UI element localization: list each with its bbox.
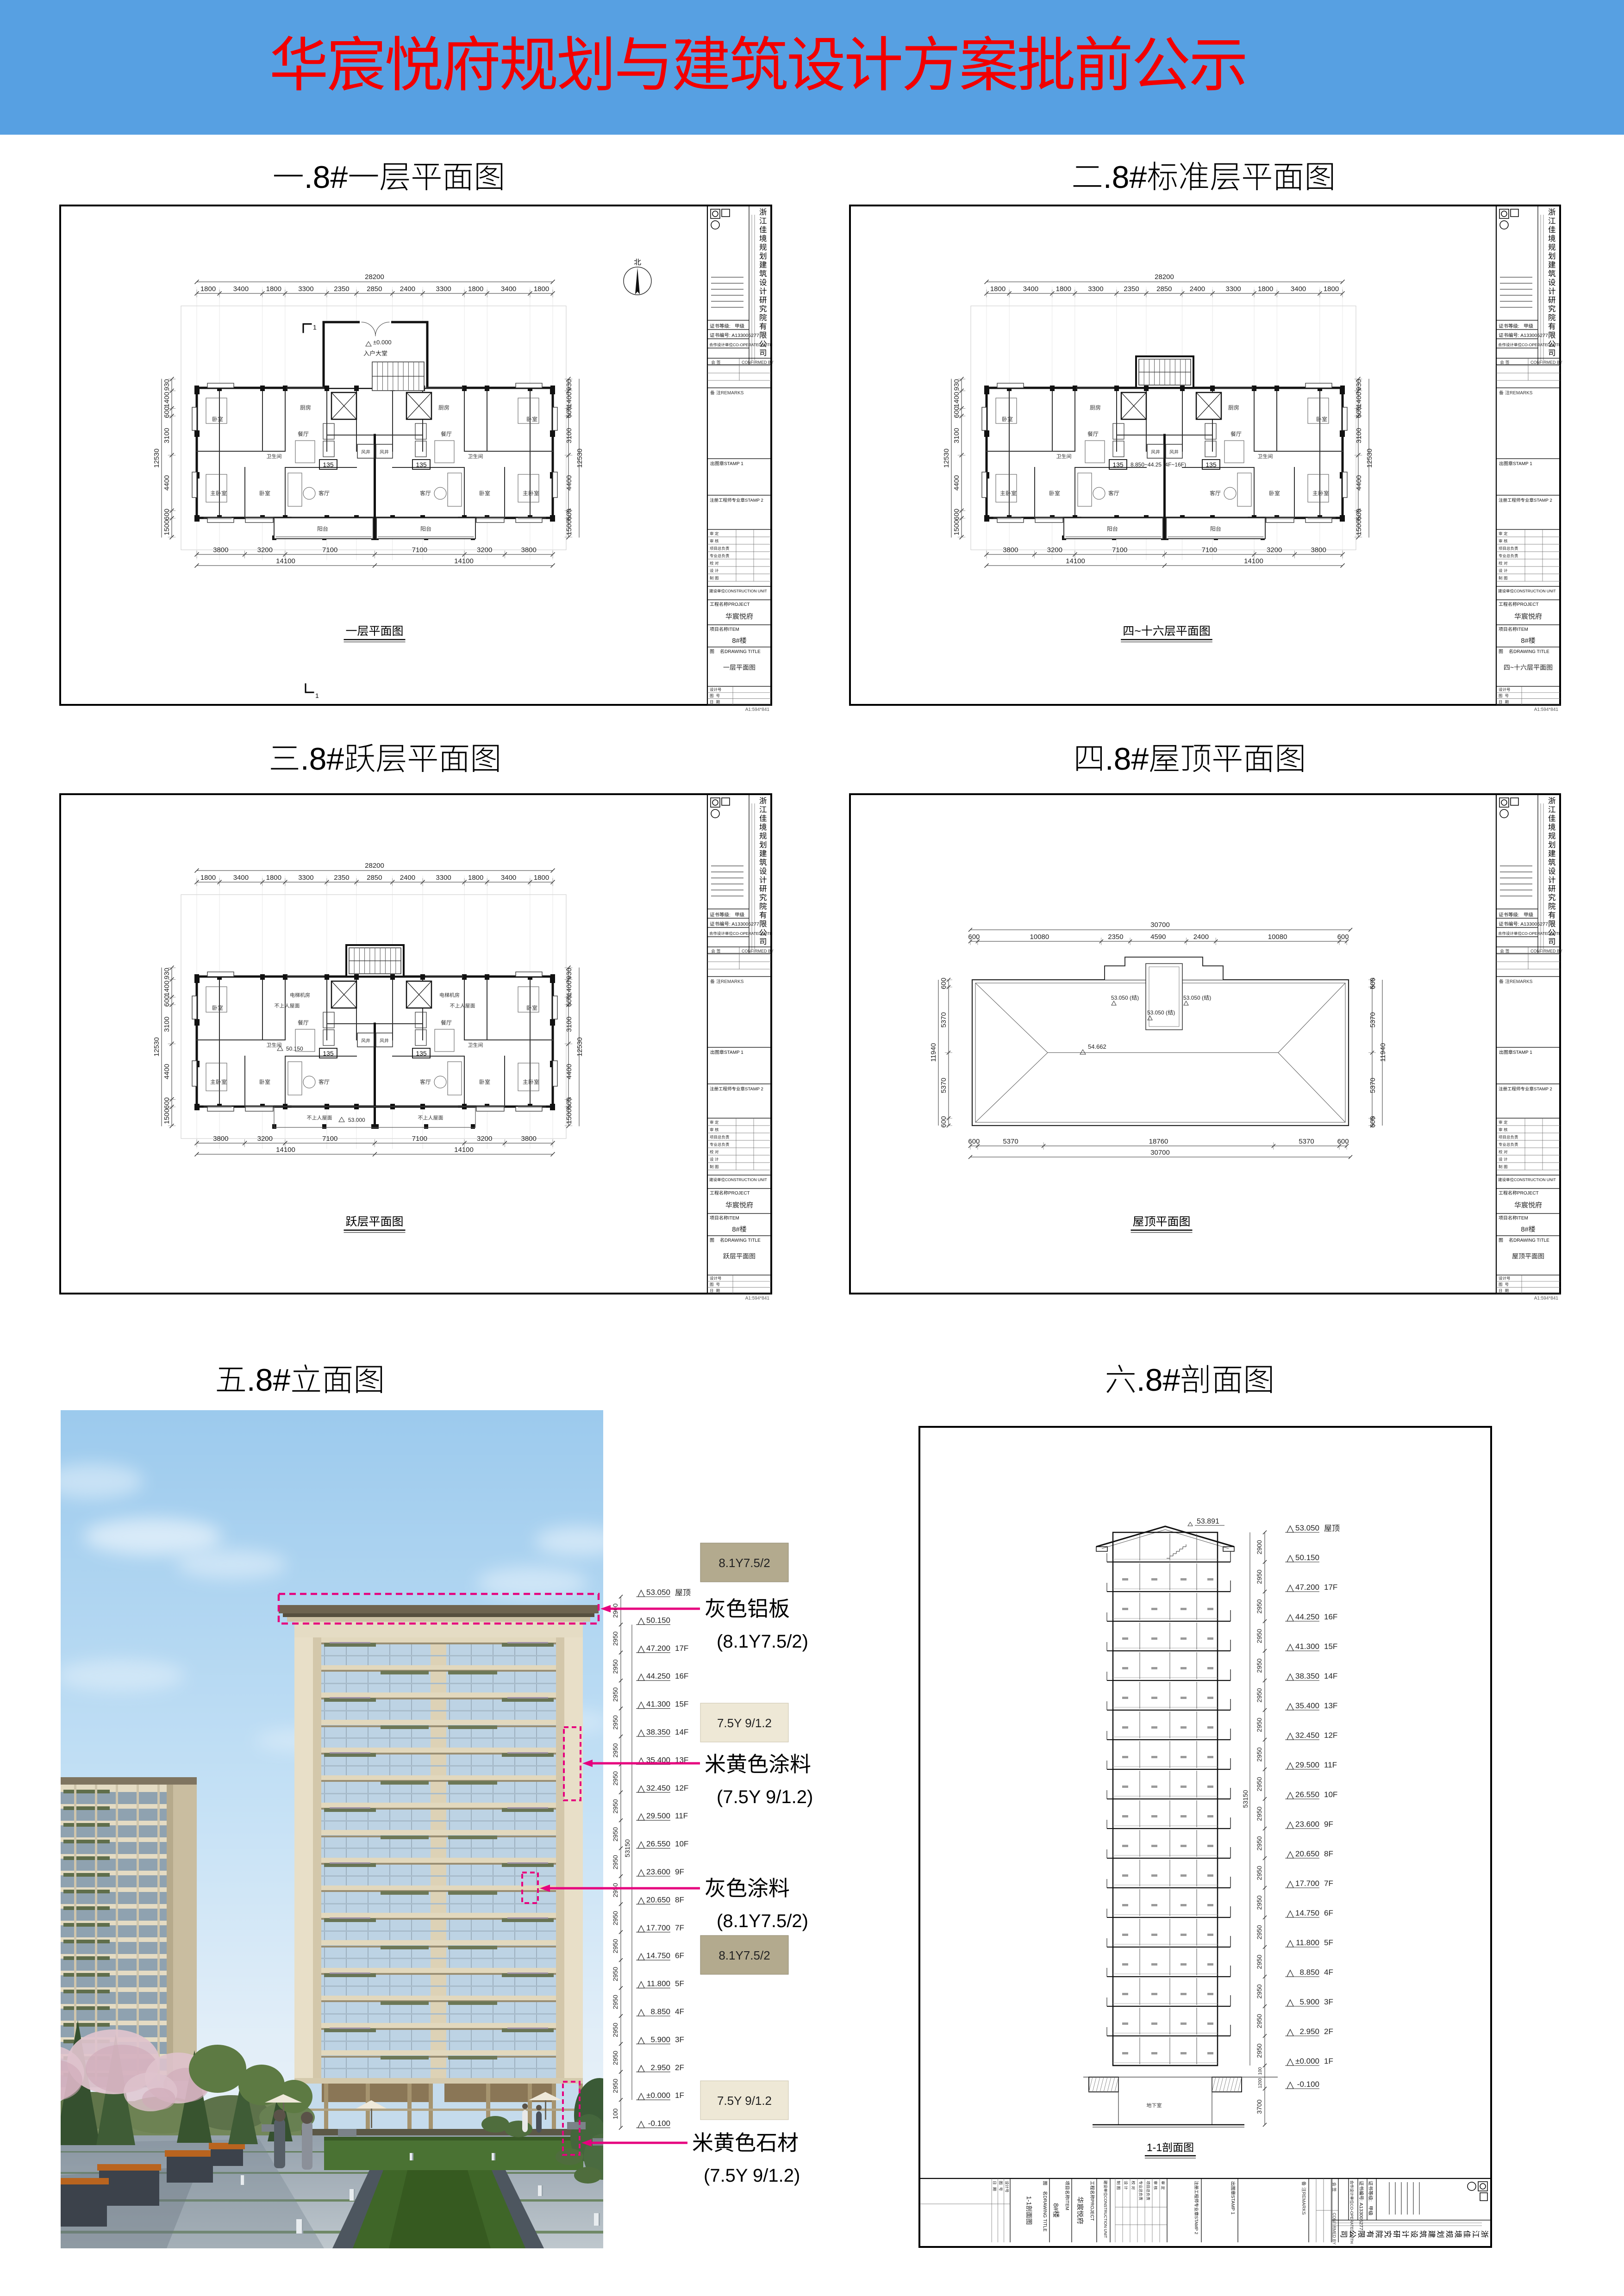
svg-text::: :	[729, 912, 731, 918]
svg-text:2400: 2400	[400, 285, 415, 293]
svg-text:53.050 (: 53.050 (	[1183, 995, 1204, 1001]
svg-text:28200: 28200	[365, 273, 384, 281]
svg-text:4F: 4F	[675, 2007, 684, 2016]
svg-text:±0.000: ±0.000	[373, 339, 392, 346]
svg-text:6F: 6F	[675, 1951, 684, 1960]
svg-text:2950: 2950	[1255, 1954, 1263, 1969]
svg-text:600: 600	[953, 509, 961, 520]
svg-text:2950: 2950	[1255, 1984, 1263, 1998]
svg-text:38.350: 38.350	[1295, 1672, 1319, 1680]
svg-text:8#: 8#	[732, 637, 740, 645]
svg-text:44.250: 44.250	[1295, 1612, 1319, 1621]
svg-text:3300: 3300	[1088, 285, 1103, 293]
svg-text:11.800: 11.800	[647, 1979, 670, 1988]
svg-text:3700: 3700	[1255, 2099, 1263, 2114]
svg-text:.8#: .8#	[247, 1363, 291, 1398]
svg-text:STAMP 1: STAMP 1	[1513, 1050, 1532, 1055]
svg-text:2950: 2950	[1255, 2014, 1263, 2028]
svg-text:1800: 1800	[468, 285, 483, 293]
svg-text:2.950: 2.950	[650, 2063, 670, 2072]
svg-text:3100: 3100	[163, 1017, 171, 1032]
svg-text:2850: 2850	[367, 285, 382, 293]
svg-text:3800: 3800	[1311, 546, 1326, 554]
svg-text:53.891: 53.891	[1197, 1518, 1219, 1525]
svg-text:600: 600	[565, 406, 573, 418]
svg-text:53.050 (: 53.050 (	[1147, 1009, 1168, 1016]
svg-text:47.200: 47.200	[1295, 1583, 1319, 1592]
svg-text:2950: 2950	[612, 1883, 619, 1897]
svg-text:53.050: 53.050	[646, 1588, 670, 1597]
svg-text::: :	[1518, 324, 1519, 329]
svg-text:.8#: .8#	[1103, 160, 1147, 195]
svg-text:~: ~	[1134, 625, 1141, 638]
svg-text:STAMP 1: STAMP 1	[1230, 2195, 1235, 2215]
svg-text:1500: 1500	[565, 520, 573, 535]
svg-text:2950: 2950	[612, 1715, 619, 1730]
svg-text:20.650: 20.650	[646, 1895, 670, 1904]
svg-text:CONFIRMED BY: CONFIRMED BY	[1332, 2213, 1337, 2245]
svg-text:: A133005277: : A133005277	[1518, 333, 1548, 338]
svg-text:2400: 2400	[400, 874, 415, 882]
svg-text:5370: 5370	[1003, 1138, 1018, 1145]
svg-text:8#: 8#	[1521, 1226, 1529, 1233]
svg-text:12530: 12530	[943, 448, 950, 468]
svg-text:CO-OPERATED WITH: CO-OPERATED WITH	[733, 342, 773, 347]
svg-text:2950: 2950	[612, 1771, 619, 1786]
svg-text:3300: 3300	[1225, 285, 1241, 293]
svg-text:14.750: 14.750	[1295, 1909, 1319, 1917]
svg-text:16F: 16F	[675, 1672, 688, 1680]
svg-text:600: 600	[940, 1116, 948, 1128]
svg-text:2350: 2350	[1124, 285, 1139, 293]
svg-text:8#: 8#	[732, 1226, 740, 1233]
svg-text:CONSTRUCTION UNIT: CONSTRUCTION UNIT	[725, 589, 767, 593]
svg-text:3400: 3400	[233, 874, 249, 882]
svg-text:CO-OPERATED WITH: CO-OPERATED WITH	[1522, 342, 1562, 347]
svg-text:STAMP 1: STAMP 1	[1513, 461, 1532, 467]
svg-text:1500: 1500	[163, 520, 171, 535]
svg-text:9F: 9F	[1324, 1820, 1333, 1829]
svg-text:7100: 7100	[412, 546, 427, 554]
svg-text:1400: 1400	[163, 392, 171, 407]
svg-text:50.150: 50.150	[286, 1045, 303, 1052]
svg-text:600: 600	[1355, 509, 1363, 520]
svg-text:2400: 2400	[1190, 285, 1205, 293]
svg-text:2950: 2950	[612, 1827, 619, 1842]
svg-text:7.5Y 9/1.2: 7.5Y 9/1.2	[717, 1716, 772, 1730]
svg-text:53.050 (: 53.050 (	[1111, 995, 1131, 1001]
svg-text:53.050: 53.050	[1295, 1524, 1319, 1532]
svg-text:2950: 2950	[1255, 1747, 1263, 1761]
svg-text:3800: 3800	[1003, 546, 1018, 554]
svg-text:±0.000: ±0.000	[646, 2091, 670, 2100]
svg-text:14100: 14100	[1066, 557, 1085, 565]
svg-text:26.550: 26.550	[1295, 1790, 1319, 1799]
svg-text:8.1Y7.5/2: 8.1Y7.5/2	[718, 1556, 770, 1570]
svg-text:135: 135	[1206, 461, 1217, 468]
svg-text:2F: 2F	[675, 2063, 684, 2072]
svg-text:1200: 1200	[1258, 2078, 1263, 2088]
svg-text:930: 930	[565, 968, 573, 979]
svg-text:2950: 2950	[1255, 1866, 1263, 1880]
svg-text:DRAWING TITLE: DRAWING TITLE	[725, 649, 761, 654]
svg-text:(8.1Y7.5/2): (8.1Y7.5/2)	[717, 1911, 808, 1931]
svg-text:5370: 5370	[940, 1012, 948, 1027]
svg-text:47.200: 47.200	[646, 1644, 670, 1653]
svg-text:600: 600	[1369, 977, 1377, 989]
svg-text:STAMP 2: STAMP 2	[1193, 2216, 1199, 2234]
svg-text:±0.000: ±0.000	[1295, 2057, 1319, 2066]
svg-text:5F: 5F	[675, 1979, 684, 1988]
svg-text:2950: 2950	[612, 1631, 619, 1646]
svg-text:135: 135	[323, 1050, 334, 1057]
svg-text:3100: 3100	[1355, 428, 1363, 443]
svg-text:7F: 7F	[675, 1923, 684, 1932]
svg-text:.8#: .8#	[1105, 741, 1149, 777]
svg-text:2850: 2850	[1156, 285, 1172, 293]
svg-text:): )	[1209, 995, 1211, 1001]
svg-text:STAMP 2: STAMP 2	[1534, 498, 1552, 503]
svg-text:10F: 10F	[675, 1840, 688, 1848]
svg-text:10F: 10F	[1324, 1790, 1337, 1799]
svg-text:38.350: 38.350	[646, 1728, 670, 1736]
svg-text:29.500: 29.500	[646, 1811, 670, 1820]
svg-text:3400: 3400	[501, 874, 516, 882]
svg-text:8F: 8F	[675, 1895, 684, 1904]
svg-text:2900: 2900	[1255, 1540, 1263, 1554]
svg-text:5.900: 5.900	[1299, 1997, 1319, 2006]
svg-text:7100: 7100	[322, 1135, 337, 1143]
svg-text:2950: 2950	[612, 2078, 619, 2093]
svg-text:14.750: 14.750	[646, 1951, 670, 1960]
svg-text:8#: 8#	[1052, 2203, 1060, 2211]
svg-text:1: 1	[313, 324, 317, 331]
svg-text:5.900: 5.900	[650, 2035, 670, 2044]
svg-text:3300: 3300	[436, 285, 451, 293]
svg-text:2.950: 2.950	[1299, 2027, 1319, 2036]
svg-text:11.800: 11.800	[1296, 1938, 1319, 1947]
svg-text:STAMP 2: STAMP 2	[745, 1087, 763, 1092]
svg-text:12530: 12530	[153, 448, 161, 468]
svg-text:7.5Y 9/1.2: 7.5Y 9/1.2	[717, 2094, 772, 2108]
svg-text:12F: 12F	[1324, 1731, 1337, 1740]
svg-text:11F: 11F	[1324, 1761, 1337, 1769]
svg-text:CONSTRUCTION UNIT: CONSTRUCTION UNIT	[1514, 589, 1556, 593]
svg-text:15F: 15F	[1324, 1642, 1337, 1651]
svg-text:REMARKS: REMARKS	[1301, 2192, 1306, 2215]
svg-text:1800: 1800	[990, 285, 1006, 293]
svg-text:50.150: 50.150	[646, 1616, 670, 1624]
svg-text:~: ~	[1510, 664, 1514, 671]
svg-text:2950: 2950	[1255, 1806, 1263, 1821]
svg-text:(7.5Y 9/1.2): (7.5Y 9/1.2)	[717, 1787, 813, 1807]
svg-text:17F: 17F	[1324, 1583, 1337, 1592]
svg-text:REMARKS: REMARKS	[1510, 979, 1533, 984]
svg-text:1-1: 1-1	[1025, 2196, 1033, 2205]
svg-text:REMARKS: REMARKS	[721, 979, 744, 984]
svg-text:1400: 1400	[1355, 392, 1363, 407]
svg-text:26.550: 26.550	[646, 1840, 670, 1848]
svg-text:5370: 5370	[1369, 1078, 1377, 1093]
svg-text:41.300: 41.300	[1295, 1642, 1319, 1651]
svg-text:13F: 13F	[1324, 1701, 1337, 1710]
svg-text:29.500: 29.500	[1295, 1761, 1319, 1769]
svg-text:1800: 1800	[1324, 285, 1339, 293]
svg-text:: A133005277: : A133005277	[729, 921, 759, 927]
svg-text:1800: 1800	[266, 285, 281, 293]
svg-text:2950: 2950	[612, 2022, 619, 2037]
svg-text:3800: 3800	[521, 546, 537, 554]
svg-text:930: 930	[163, 379, 171, 391]
svg-text:1: 1	[315, 692, 319, 699]
svg-text:CONSTRUCTION UNIT: CONSTRUCTION UNIT	[1514, 1177, 1556, 1182]
svg-text:DRAWING TITLE: DRAWING TITLE	[1513, 649, 1549, 654]
svg-text:53.000: 53.000	[348, 1117, 365, 1123]
svg-text:DRAWING TITLE: DRAWING TITLE	[1042, 2196, 1047, 2232]
svg-text:3F: 3F	[1324, 1997, 1333, 2006]
svg-text:7100: 7100	[322, 546, 337, 554]
svg-text:20.650: 20.650	[1295, 1849, 1319, 1858]
svg-text:28200: 28200	[365, 862, 384, 870]
svg-text:600: 600	[163, 406, 171, 418]
svg-text:14100: 14100	[454, 1146, 474, 1154]
svg-text:600: 600	[968, 933, 980, 941]
svg-text:2850: 2850	[367, 874, 382, 882]
svg-text:28200: 28200	[1155, 273, 1174, 281]
svg-text:ITEM: ITEM	[728, 1216, 739, 1221]
svg-text:23.600: 23.600	[646, 1867, 670, 1876]
svg-text:1800: 1800	[534, 285, 549, 293]
svg-text:7100: 7100	[1202, 546, 1217, 554]
svg-text:600: 600	[1355, 406, 1363, 418]
svg-text:600: 600	[163, 995, 171, 1007]
svg-text:4400: 4400	[163, 475, 171, 491]
svg-text:53150: 53150	[1242, 1790, 1249, 1808]
svg-text::: :	[1368, 2200, 1373, 2202]
svg-text:3200: 3200	[257, 1135, 273, 1143]
svg-text:ITEM: ITEM	[1517, 1216, 1528, 1221]
svg-text:1400: 1400	[163, 981, 171, 996]
svg-text:3100: 3100	[565, 428, 573, 443]
svg-text:1500: 1500	[953, 520, 961, 535]
svg-text:ITEM: ITEM	[1064, 2199, 1069, 2210]
svg-text:1500: 1500	[1355, 520, 1363, 535]
svg-text:30700: 30700	[1150, 921, 1170, 929]
svg-text:1-1: 1-1	[1147, 2141, 1162, 2153]
svg-text:600: 600	[1337, 1138, 1349, 1145]
svg-text:15F: 15F	[675, 1700, 688, 1709]
svg-text:1400: 1400	[953, 392, 961, 407]
svg-text:5370: 5370	[940, 1078, 948, 1093]
svg-text:2950: 2950	[1255, 1569, 1263, 1584]
svg-text:17.700: 17.700	[1295, 1879, 1319, 1888]
svg-text:2950: 2950	[1255, 1658, 1263, 1673]
svg-text:600: 600	[565, 995, 573, 1007]
svg-text:CO-OPERATED WITH: CO-OPERATED WITH	[733, 931, 773, 936]
svg-text:3300: 3300	[298, 874, 313, 882]
svg-text:4400: 4400	[953, 475, 961, 491]
svg-text:A1:594*841: A1:594*841	[1534, 1296, 1559, 1301]
svg-text:A1:594*841: A1:594*841	[745, 1296, 770, 1301]
svg-text:3100: 3100	[953, 428, 961, 443]
svg-text:600: 600	[940, 977, 948, 989]
svg-text:5F: 5F	[1324, 1938, 1333, 1947]
svg-text:10080: 10080	[1268, 933, 1287, 941]
svg-text:600: 600	[953, 406, 961, 418]
svg-text:1800: 1800	[1056, 285, 1071, 293]
svg-text:2950: 2950	[1255, 1688, 1263, 1702]
svg-text:CO-OPERATED WITH: CO-OPERATED WITH	[1522, 931, 1562, 936]
svg-text:2950: 2950	[612, 2051, 619, 2065]
svg-text:23.600: 23.600	[1295, 1820, 1319, 1829]
svg-text:12530: 12530	[153, 1037, 161, 1057]
svg-text:PROJECT: PROJECT	[1517, 1191, 1539, 1196]
svg-text:CONFIRMED BY: CONFIRMED BY	[742, 949, 774, 953]
svg-text:32.450: 32.450	[646, 1784, 670, 1792]
svg-text:3200: 3200	[1267, 546, 1282, 554]
svg-text:CONSTRUCTION UNIT: CONSTRUCTION UNIT	[1103, 2196, 1108, 2238]
svg-text:2350: 2350	[334, 874, 349, 882]
svg-text:10080: 10080	[1030, 933, 1049, 941]
svg-text::: :	[1518, 912, 1519, 918]
svg-text:STAMP 2: STAMP 2	[745, 498, 763, 503]
svg-text:1800: 1800	[200, 285, 216, 293]
svg-text:35.400: 35.400	[1295, 1701, 1319, 1710]
svg-text:50.150: 50.150	[1295, 1553, 1319, 1562]
svg-text:7F: 7F	[1324, 1879, 1333, 1888]
svg-text:32.450: 32.450	[1295, 1731, 1319, 1740]
svg-text:100: 100	[1258, 2067, 1263, 2075]
svg-text:: A133005277: : A133005277	[1358, 2200, 1364, 2230]
svg-text:STAMP 1: STAMP 1	[724, 1050, 743, 1055]
svg-text:18760: 18760	[1149, 1138, 1168, 1145]
svg-text:-0.100: -0.100	[648, 2119, 670, 2128]
svg-text:2950: 2950	[1255, 1629, 1263, 1643]
svg-text:1F: 1F	[1324, 2057, 1333, 2066]
svg-text:3100: 3100	[163, 428, 171, 443]
svg-text:8F: 8F	[1324, 1849, 1333, 1858]
svg-text:PROJECT: PROJECT	[1517, 602, 1539, 607]
svg-text:3300: 3300	[436, 874, 451, 882]
svg-text:-0.100: -0.100	[1297, 2080, 1319, 2089]
svg-text:PROJECT: PROJECT	[728, 1191, 750, 1196]
svg-text:11F: 11F	[675, 1811, 688, 1820]
svg-text:1800: 1800	[200, 874, 216, 882]
svg-text:3200: 3200	[477, 1135, 492, 1143]
svg-text:1800: 1800	[534, 874, 549, 882]
svg-text:5370: 5370	[1369, 1012, 1377, 1027]
svg-text:930: 930	[1355, 379, 1363, 391]
svg-text:9F: 9F	[675, 1867, 684, 1876]
svg-text:2950: 2950	[612, 1799, 619, 1813]
svg-text:12530: 12530	[576, 448, 584, 468]
svg-text:2F: 2F	[1324, 2027, 1333, 2036]
svg-text:2950: 2950	[612, 1911, 619, 1925]
svg-text:2950: 2950	[1255, 2043, 1263, 2058]
svg-text:5370: 5370	[1299, 1138, 1314, 1145]
svg-text:8.850~44.25 (4F~16F): 8.850~44.25 (4F~16F)	[1131, 461, 1186, 468]
svg-text:1800: 1800	[468, 874, 483, 882]
svg-text:4400: 4400	[163, 1064, 171, 1079]
svg-text:DRAWING TITLE: DRAWING TITLE	[725, 1238, 761, 1243]
svg-text:REMARKS: REMARKS	[721, 391, 744, 396]
svg-text:8#: 8#	[1521, 637, 1529, 645]
svg-text:14100: 14100	[276, 557, 295, 565]
svg-text:A1:594*841: A1:594*841	[1534, 707, 1559, 712]
svg-text:8.850: 8.850	[1299, 1968, 1319, 1977]
svg-text:16F: 16F	[1324, 1612, 1337, 1621]
svg-text:11940: 11940	[930, 1043, 937, 1062]
svg-text:1800: 1800	[1258, 285, 1273, 293]
svg-text:1500: 1500	[565, 1109, 573, 1124]
svg-text:CO-OPERATED WITH: CO-OPERATED WITH	[1349, 2204, 1354, 2244]
svg-text:4590: 4590	[1150, 933, 1166, 941]
svg-text:ITEM: ITEM	[728, 627, 739, 632]
svg-text:DRAWING TITLE: DRAWING TITLE	[1513, 1238, 1549, 1243]
svg-text:CONFIRMED BY: CONFIRMED BY	[1530, 360, 1562, 365]
svg-text:STAMP 2: STAMP 2	[1534, 1087, 1552, 1092]
svg-text:): )	[1137, 995, 1139, 1001]
svg-text:3800: 3800	[213, 546, 228, 554]
svg-text:135: 135	[416, 461, 427, 468]
svg-text:CONSTRUCTION UNIT: CONSTRUCTION UNIT	[725, 1177, 767, 1182]
svg-text:14100: 14100	[1244, 557, 1263, 565]
svg-text:4400: 4400	[565, 1064, 573, 1079]
svg-text:): )	[1173, 1009, 1175, 1016]
svg-text:8.1Y7.5/2: 8.1Y7.5/2	[718, 1948, 770, 1962]
svg-text:3800: 3800	[213, 1135, 228, 1143]
svg-text:17.700: 17.700	[646, 1923, 670, 1932]
svg-text:2350: 2350	[334, 285, 349, 293]
svg-text:2950: 2950	[1255, 1717, 1263, 1732]
svg-text:3800: 3800	[521, 1135, 537, 1143]
svg-text:3F: 3F	[675, 2035, 684, 2044]
svg-text:12530: 12530	[576, 1037, 584, 1057]
svg-text:: A133005277: : A133005277	[729, 333, 759, 338]
svg-text:44.250: 44.250	[646, 1672, 670, 1680]
svg-text:600: 600	[1369, 1116, 1377, 1128]
svg-text:12530: 12530	[1366, 448, 1374, 468]
svg-text:(7.5Y 9/1.2): (7.5Y 9/1.2)	[704, 2165, 800, 2186]
svg-text:14F: 14F	[1324, 1672, 1337, 1680]
svg-text:1800: 1800	[266, 874, 281, 882]
svg-text:6F: 6F	[1324, 1909, 1333, 1917]
svg-text:2950: 2950	[612, 1743, 619, 1757]
svg-text:30700: 30700	[1150, 1149, 1170, 1157]
svg-text:14100: 14100	[454, 557, 474, 565]
svg-text:12F: 12F	[675, 1784, 688, 1792]
svg-text:600: 600	[968, 1138, 980, 1145]
svg-text:4400: 4400	[1355, 475, 1363, 491]
svg-text:.8#: .8#	[304, 160, 348, 195]
svg-text:600: 600	[163, 1097, 171, 1109]
svg-text:3400: 3400	[501, 285, 516, 293]
svg-text:53150: 53150	[624, 1839, 631, 1857]
svg-text:3400: 3400	[233, 285, 249, 293]
svg-text:1400: 1400	[565, 981, 573, 996]
svg-text:135: 135	[323, 461, 334, 468]
svg-text:8.850: 8.850	[650, 2007, 670, 2016]
svg-text:14100: 14100	[276, 1146, 295, 1154]
svg-text:7100: 7100	[1112, 546, 1127, 554]
svg-text:1500: 1500	[163, 1109, 171, 1124]
svg-text:2950: 2950	[1255, 1925, 1263, 1939]
svg-text:7100: 7100	[412, 1135, 427, 1143]
svg-text:(8.1Y7.5/2): (8.1Y7.5/2)	[717, 1631, 808, 1652]
svg-text:3200: 3200	[257, 546, 273, 554]
svg-text:2400: 2400	[1193, 933, 1209, 941]
svg-text:3100: 3100	[565, 1017, 573, 1032]
